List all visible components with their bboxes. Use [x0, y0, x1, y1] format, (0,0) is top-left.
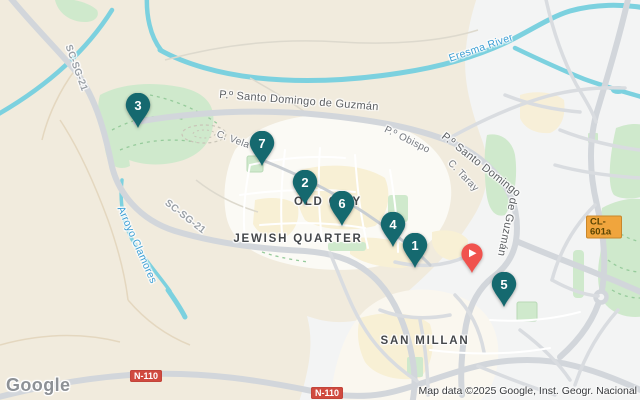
map-pin-number: 4 — [380, 217, 406, 232]
featured-place-marker[interactable] — [460, 242, 484, 274]
basemap-graphic — [0, 0, 640, 400]
featured-pin-icon — [460, 242, 484, 274]
google-logo[interactable]: Google — [6, 375, 70, 396]
numbered-map-pin[interactable]: 6 — [329, 191, 355, 227]
numbered-map-pin[interactable]: 3 — [125, 93, 151, 129]
map-pin-number: 6 — [329, 196, 355, 211]
numbered-map-pin[interactable]: 7 — [249, 131, 275, 167]
map-data-attribution: Map data ©2025 Google, Inst. Geogr. Naci… — [419, 385, 637, 397]
map-pin-number: 3 — [125, 98, 151, 113]
map-pin-number: 7 — [249, 136, 275, 151]
numbered-map-pin[interactable]: 2 — [292, 170, 318, 206]
map-pin-number: 2 — [292, 175, 318, 190]
numbered-map-pin[interactable]: 4 — [380, 212, 406, 248]
map-pin-number: 5 — [491, 277, 517, 292]
numbered-map-pin[interactable]: 5 — [491, 272, 517, 308]
map-canvas[interactable]: P.º Santo Domingo de Guzmán P.º Santo Do… — [0, 0, 640, 400]
